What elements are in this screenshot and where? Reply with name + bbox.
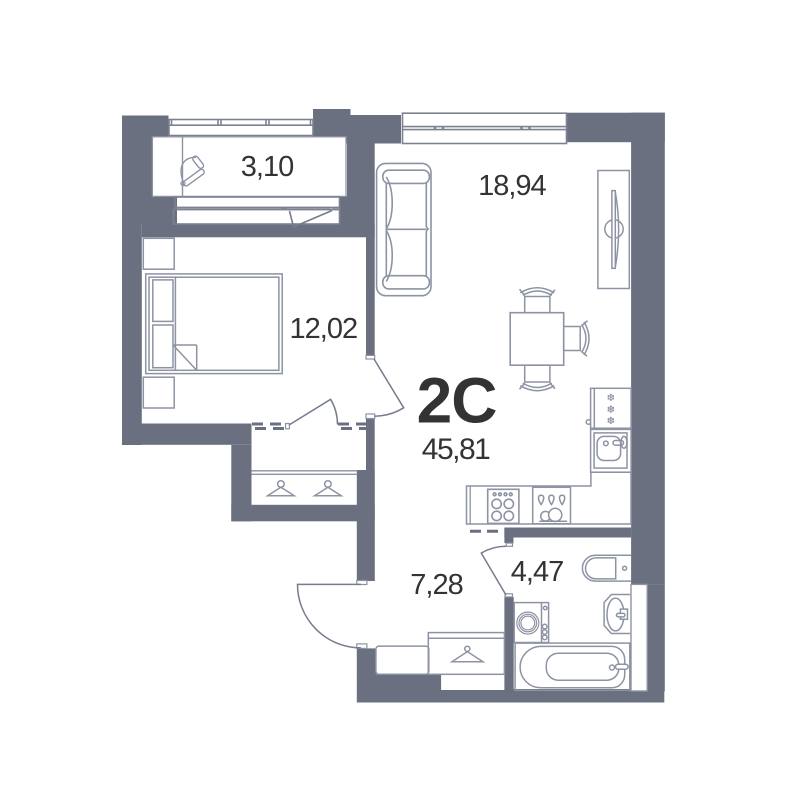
svg-text:7,28: 7,28 [410,569,462,601]
svg-text:12,02: 12,02 [290,313,358,345]
svg-text:3,10: 3,10 [241,151,293,183]
svg-text:2С: 2С [417,365,497,437]
svg-text:18,94: 18,94 [478,170,546,202]
svg-text:4,47: 4,47 [511,556,563,588]
svg-text:45,81: 45,81 [422,433,490,466]
